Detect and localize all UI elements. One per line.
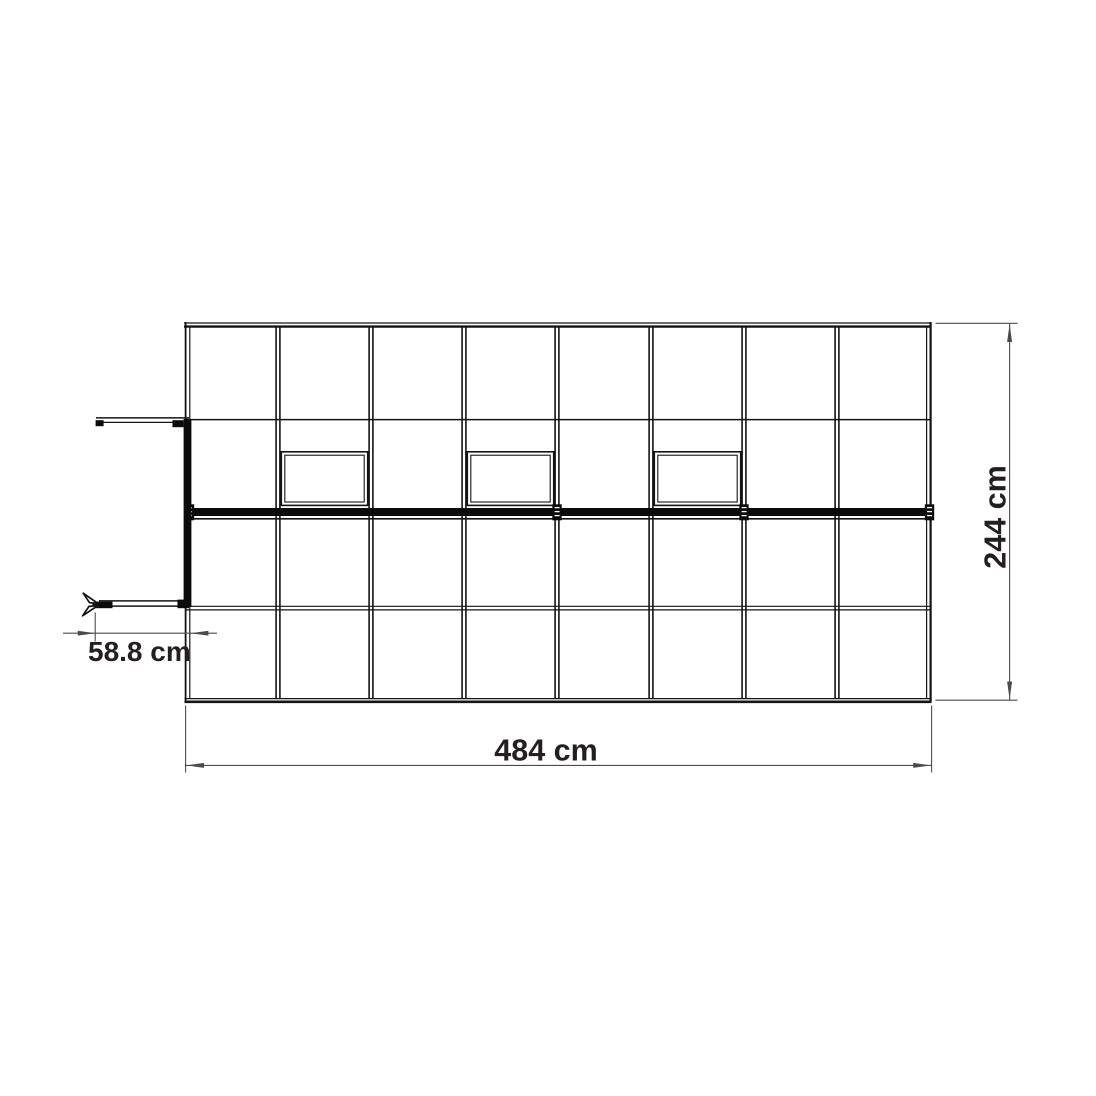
arrowhead	[191, 631, 209, 636]
roof-vents	[281, 452, 740, 506]
arrowhead	[913, 763, 931, 768]
depth-dimension-label: 244 cm	[979, 465, 1013, 568]
width-dimension: 484 cm	[186, 706, 932, 773]
door-rail-end-cap	[96, 420, 104, 426]
ridge-connector	[739, 504, 748, 520]
roof-vent-frame-inner	[658, 455, 737, 502]
arrowhead	[1007, 324, 1012, 342]
door-offset-dimension-label: 58.8 cm	[88, 636, 191, 667]
roof-vent-frame-outer	[467, 452, 553, 506]
ridge-beam	[185, 504, 934, 520]
drawing-canvas: 58.8 cm 484 cm 244 cm	[0, 0, 1096, 1096]
roof-vent-frame-inner	[471, 455, 550, 502]
door-rail-end-cap	[178, 600, 190, 609]
door-rail-end-cap	[173, 420, 184, 427]
roof-vent-frame-outer	[281, 452, 367, 506]
roof-vent	[281, 452, 367, 506]
arrowhead	[186, 763, 204, 768]
roof-vent	[654, 452, 740, 506]
arrowhead	[1007, 682, 1012, 700]
roof-vent-frame-inner	[285, 455, 364, 502]
handle-wing	[83, 593, 98, 603]
door-offset-dimension: 58.8 cm	[63, 613, 217, 668]
sliding-door	[83, 418, 192, 616]
ridge-connector	[925, 504, 934, 520]
door-top-rail	[96, 418, 189, 427]
door-panel-wall	[184, 419, 192, 607]
width-dimension-label: 484 cm	[494, 734, 597, 768]
arrowhead	[78, 631, 96, 636]
roof-vent-frame-outer	[654, 452, 740, 506]
ridge-connector-block	[739, 504, 748, 520]
door-bottom-rail	[83, 593, 189, 616]
greenhouse-top-view-diagram: 58.8 cm 484 cm 244 cm	[0, 0, 1096, 1096]
ridge-connector-block	[552, 504, 561, 520]
depth-dimension: 244 cm	[936, 323, 1018, 700]
roof-vent	[467, 452, 553, 506]
ridge-connector-block	[925, 504, 934, 520]
ridge-connector	[552, 504, 561, 520]
